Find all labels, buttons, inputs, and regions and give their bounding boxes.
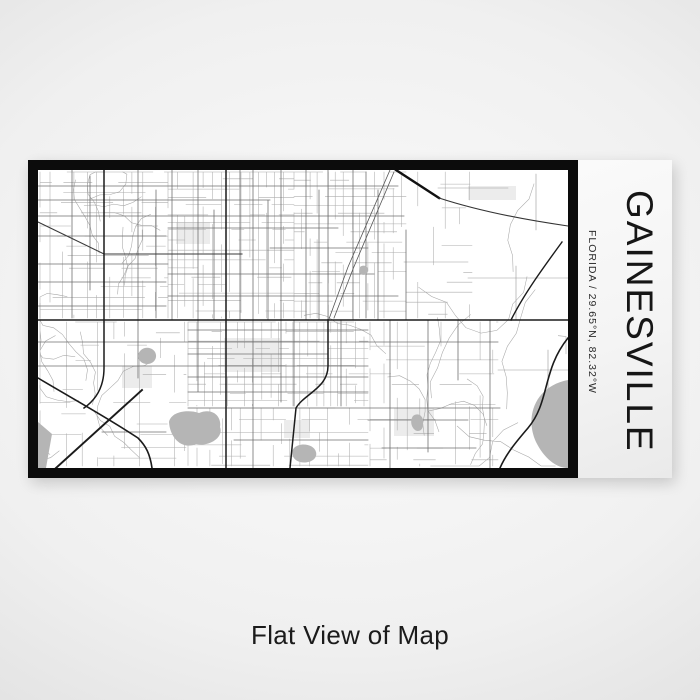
city-subtitle: FLORIDA / 29.65°N, 82.32°W [586, 230, 598, 394]
street-map [38, 170, 568, 468]
title-panel: GAINESVILLE FLORIDA / 29.65°N, 82.32°W [578, 160, 672, 478]
view-caption: Flat View of Map [0, 620, 700, 651]
map-print-card: GAINESVILLE FLORIDA / 29.65°N, 82.32°W [28, 160, 672, 478]
city-title: GAINESVILLE [618, 190, 660, 453]
map-frame [28, 160, 578, 478]
